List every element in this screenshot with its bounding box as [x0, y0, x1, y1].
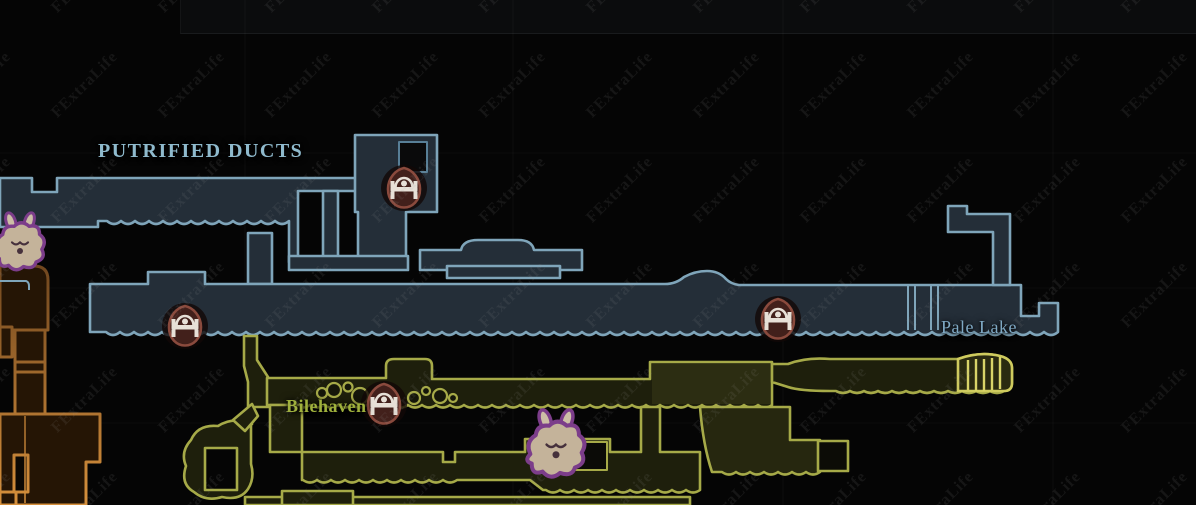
putrified-ducts-room	[90, 271, 1058, 335]
putrified-ducts-room	[948, 206, 1010, 285]
bench-marker[interactable]	[381, 165, 427, 211]
putrified-ducts-room	[248, 233, 272, 284]
bilehaven-room	[184, 420, 253, 498]
region-putrified-ducts	[0, 135, 1058, 335]
orange-region-room	[14, 455, 28, 492]
region-bilehaven	[184, 336, 1012, 505]
bilehaven-room	[282, 491, 353, 505]
orange-region-room	[0, 492, 16, 505]
bilehaven-room	[818, 441, 848, 471]
putrified-ducts-room	[0, 178, 356, 262]
bench-marker[interactable]	[162, 303, 208, 349]
bench-icon	[162, 303, 208, 349]
map-grid-lines	[0, 0, 1196, 505]
putrified-ducts-room	[323, 191, 338, 261]
bench-marker[interactable]	[755, 296, 801, 342]
bench-icon	[755, 296, 801, 342]
flea-icon	[527, 408, 584, 476]
bilehaven-room	[652, 364, 770, 404]
flea-marker[interactable]	[527, 408, 584, 476]
orange-region-room	[0, 327, 12, 357]
world-map-canvas	[0, 0, 1196, 505]
bilehaven-room	[700, 407, 820, 475]
bilehaven-room	[302, 407, 700, 493]
putrified-ducts-room	[289, 256, 408, 270]
bilehaven-room	[270, 405, 302, 452]
orange-region-room	[0, 266, 48, 330]
map-viewport[interactable]: PUTRIFIED DUCTS Pale Lake Bilehaven FExt…	[0, 0, 1196, 505]
bench-marker[interactable]	[361, 381, 407, 427]
bilehaven-room	[244, 336, 268, 407]
putrified-ducts-room	[447, 266, 560, 278]
region-west-orange	[0, 266, 100, 505]
bench-icon	[381, 165, 427, 211]
bench-icon	[361, 381, 407, 427]
